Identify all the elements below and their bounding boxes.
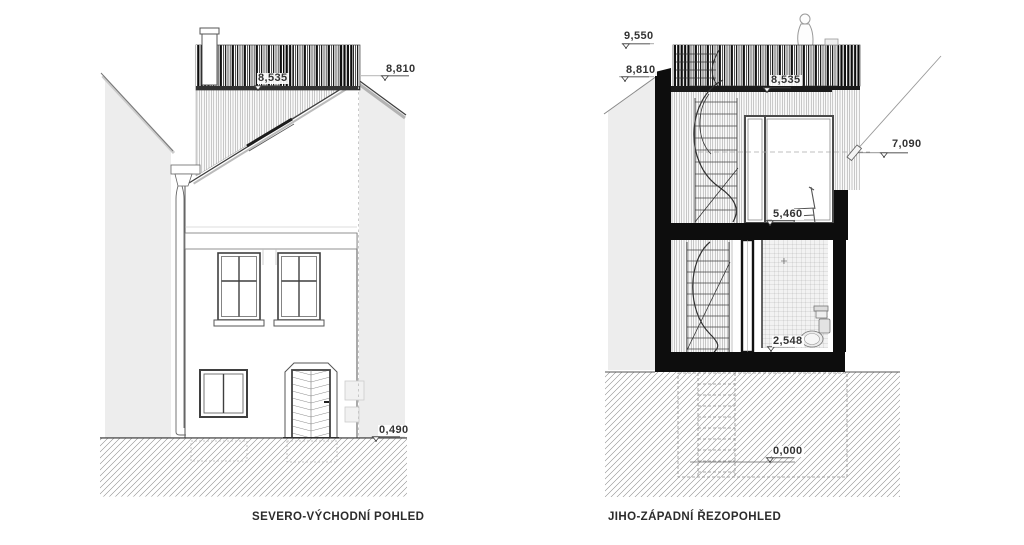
window-sill [274, 320, 324, 326]
ground [100, 438, 407, 497]
window-ground-floor [200, 370, 247, 417]
neighbor-building-right [359, 81, 405, 438]
dimension-label: 0,490 [378, 425, 410, 436]
section-sw-svg [558, 10, 968, 500]
dimension-label: 7,090 [891, 139, 923, 150]
dimension-label: 2,548 [772, 336, 804, 347]
window-sill [214, 320, 264, 326]
dimension-label: 8,810 [385, 64, 417, 75]
window-upper-left [214, 253, 264, 326]
upper-glass-door [745, 116, 833, 223]
planter-box [825, 39, 838, 45]
terrace-railing [669, 39, 860, 92]
neighbor-building-left [101, 73, 174, 438]
elevation-drawing-ne [95, 25, 415, 505]
chimney [200, 28, 219, 85]
level-marker-icon [880, 153, 908, 158]
window-upper-right [274, 253, 324, 326]
tiled-wall [762, 240, 828, 348]
entrance-door [283, 363, 339, 438]
level-marker-icon [622, 44, 650, 49]
interior-partition [742, 240, 753, 352]
architectural-sheet: 8,535 8,810 0,490 9,550 8,810 8,535 7,09… [0, 0, 1024, 545]
neighbor-building-section [604, 76, 657, 370]
ground-and-basement [605, 372, 900, 497]
dimension-label: 9,550 [623, 31, 655, 42]
bathroom [762, 240, 830, 348]
dimension-label: 8,535 [257, 73, 289, 84]
dimension-label: 8,810 [625, 65, 657, 76]
sink [814, 306, 828, 318]
section-drawing-sw [558, 10, 968, 500]
level-marker-icon [621, 77, 649, 82]
dimension-label: 5,460 [772, 209, 804, 220]
cornice-band [185, 233, 357, 249]
elevation-ne-svg [95, 25, 415, 505]
dimension-label: 0,000 [772, 446, 804, 457]
level-marker-icon [381, 76, 409, 81]
caption-elevation-ne: SEVERO-VÝCHODNÍ POHLED [252, 511, 424, 523]
dimension-label: 8,535 [770, 75, 802, 86]
caption-section-sw: JIHO-ZÁPADNÍ ŘEZOPOHLED [608, 511, 781, 523]
